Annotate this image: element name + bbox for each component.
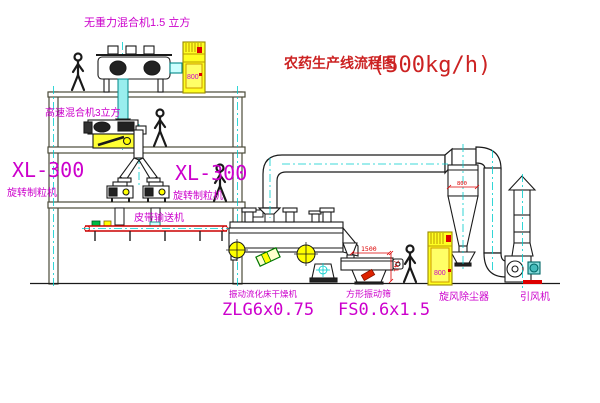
fan-piping bbox=[476, 147, 506, 277]
cabinet-bottom-tag: 800 bbox=[434, 270, 446, 277]
belt-conveyor bbox=[82, 221, 230, 241]
floor2-slab bbox=[48, 147, 245, 153]
flow-diagram-canvas: 800 bbox=[0, 0, 600, 403]
worker-floor2 bbox=[154, 110, 166, 147]
dim-screen-height: 741 bbox=[392, 260, 400, 272]
worker-roof bbox=[72, 54, 84, 91]
label-granulator-left-name: 旋转制粒机 bbox=[7, 186, 57, 199]
control-cabinet-bottom: 800 bbox=[428, 232, 452, 285]
title-capacity: (500kg/h) bbox=[372, 53, 491, 78]
label-fan: 引风机 bbox=[520, 290, 550, 303]
granulator-left bbox=[107, 182, 133, 202]
label-dryer-model: ZLG6x0.75 bbox=[222, 300, 314, 320]
fan-base bbox=[523, 280, 542, 284]
roof-slab bbox=[48, 92, 245, 97]
induced-draft-fan bbox=[505, 256, 542, 284]
floor3-slab bbox=[48, 202, 245, 208]
granulator-right bbox=[143, 182, 169, 202]
label-gravity-free-mixer: 无重力混合机1.5 立方 bbox=[84, 15, 190, 29]
dim-cyclone: 800 bbox=[457, 181, 467, 187]
red-indicator bbox=[446, 235, 451, 242]
down-duct bbox=[134, 130, 143, 158]
label-dryer-name: 振动流化床干燥机 bbox=[229, 289, 298, 299]
label-high-speed-mixer: 高速混合机3立方 bbox=[45, 106, 121, 119]
fluid-bed-dryer bbox=[229, 208, 358, 282]
bucket-elevator-top: 800 bbox=[183, 42, 205, 93]
cad-flow-diagram: 800 bbox=[0, 0, 600, 403]
label-screen-name: 方形振动筛 bbox=[346, 288, 391, 299]
cabinet-top-tag: 800 bbox=[187, 74, 199, 81]
label-belt-conveyor: 皮带输送机 bbox=[134, 211, 184, 224]
label-granulator-right-model: XL-300 bbox=[175, 161, 247, 185]
exhaust-duct bbox=[245, 149, 452, 223]
gravity-free-mixer bbox=[96, 46, 182, 92]
label-granulator-right-name: 旋转制粒机 bbox=[173, 189, 223, 202]
dim-screen-length: 1500 bbox=[361, 245, 377, 253]
label-granulator-left-model: XL-300 bbox=[12, 158, 84, 182]
red-indicator bbox=[197, 47, 202, 53]
worker-ground bbox=[404, 246, 416, 283]
label-screen-model: FS0.6x1.5 bbox=[338, 300, 430, 320]
exhaust-stack bbox=[509, 176, 535, 256]
rain-cap bbox=[509, 176, 535, 190]
label-cyclone: 旋风除尘器 bbox=[439, 290, 489, 303]
